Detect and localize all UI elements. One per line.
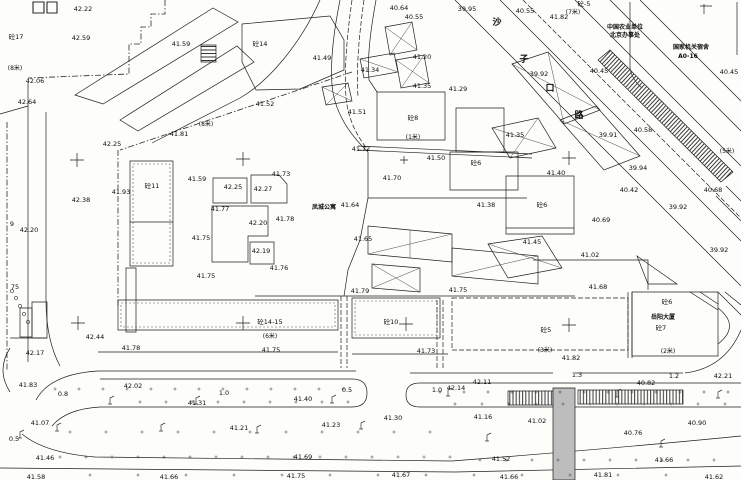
spot-elevation-label: 40.64: [390, 4, 409, 12]
road-width-label: (5米): [720, 147, 735, 155]
tree-dot-icon: [140, 430, 143, 433]
spot-elevation-label: 41.23: [322, 421, 341, 429]
spot-elevation-label: 41.68: [589, 283, 608, 291]
spot-elevation-label: 39.94: [629, 164, 648, 172]
street-lamp-icon: [485, 433, 491, 441]
road-width-label: (8米): [8, 64, 23, 72]
tree-dot-icon: [686, 458, 689, 461]
building-floor-label: 砼6: [471, 158, 482, 167]
spot-elevation-label: 40.58: [634, 126, 653, 134]
spot-elevation-label: 42.02: [124, 382, 143, 390]
spot-elevation-label: 41.64: [341, 201, 360, 209]
site-plan-canvas: 42.2242.5942.0642.6441.5941.5241.4941.51…: [0, 0, 741, 480]
spot-elevation-label: 41.81: [170, 130, 189, 138]
spot-elevation-label: 41.58: [27, 473, 46, 480]
place-name-label: 国家机关宿舍: [673, 43, 710, 51]
tree-dot-icon: [149, 387, 152, 390]
tree-dot-icon: [138, 400, 141, 403]
spot-elevation-label: 40.90: [688, 419, 707, 427]
tree-dot-icon: [582, 458, 585, 461]
spot-elevation-label: 41.70: [383, 174, 402, 182]
street-lamp-layer: [18, 388, 722, 447]
spot-elevation-label: 41.07: [31, 419, 50, 427]
tree-dot-icon: [480, 402, 483, 405]
building-6-upper: [456, 108, 504, 152]
place-name-label: 中国农业单位: [607, 23, 643, 31]
spot-elevation-label: 42.06: [26, 77, 45, 85]
tree-dot-icon: [448, 455, 451, 458]
spot-elevation-label: 41.29: [449, 85, 468, 93]
spot-elevation-label: 41.21: [230, 424, 249, 432]
spot-elevation-label: 41.02: [528, 417, 547, 425]
place-name-label: 凤城公寓: [312, 203, 336, 211]
survey-cross-icon: [399, 317, 413, 331]
spot-elevation-label: 41.59: [188, 175, 207, 183]
spot-elevation-label: 41.35: [506, 131, 525, 139]
road-width-label: (8米): [199, 120, 214, 128]
building-slab-b: [120, 46, 254, 131]
spot-elevation-label: 41.78: [122, 344, 141, 352]
tree-dot-icon: [616, 473, 619, 476]
tree-dot-icon: [248, 430, 251, 433]
spot-elevation-label: 41.93: [112, 188, 131, 196]
spot-elevation-label: 41.83: [19, 381, 38, 389]
spot-elevation-label: 41.59: [172, 40, 191, 48]
tree-dot-icon: [269, 387, 272, 390]
spot-elevation-label: 41.40: [547, 169, 566, 177]
spot-elevation-label: 41.16: [474, 413, 493, 421]
street-lamp-icon: [55, 423, 61, 431]
tree-dot-icon: [376, 473, 379, 476]
spot-elevation-label: 41.75: [262, 346, 281, 354]
tree-dot-icon: [173, 387, 176, 390]
tree-dot-icon: [723, 402, 726, 405]
survey-cross-icon: [70, 153, 84, 167]
spot-elevation-label: 41.46: [36, 454, 55, 462]
building-floor-label: 砼-5: [578, 0, 591, 8]
spot-elevation-label: 39.92: [530, 70, 549, 78]
street-name-char: 口: [545, 83, 554, 94]
spot-elevation-label: 41.38: [477, 201, 496, 209]
spot-elevation-label: 41.82: [562, 354, 581, 362]
spot-elevation-label: 39.92: [669, 203, 688, 211]
tree-dot-icon: [696, 402, 699, 405]
spot-elevation-label: 39.92: [710, 246, 729, 254]
spot-elevation-label: 40.42: [620, 186, 639, 194]
tree-dot-icon: [240, 455, 243, 458]
spot-elevation-label: 40.76: [624, 429, 643, 437]
survey-cross-icon: [236, 316, 250, 330]
tree-dot-icon: [184, 473, 187, 476]
spot-elevation-label: 41.49: [313, 54, 332, 62]
pole-icon: [14, 296, 17, 299]
steps-band: [598, 50, 733, 182]
wedge-structure: [637, 256, 677, 284]
tree-dot-icon: [68, 430, 71, 433]
survey-cross-icon: [71, 316, 85, 330]
spot-elevation-label: 0.5: [342, 386, 352, 394]
spot-elevation-label: 41.62: [705, 473, 724, 480]
place-name-label: 岳阳大厦: [651, 313, 676, 321]
tree-dot-icon: [320, 400, 323, 403]
building-floor-label: 砼6: [662, 297, 673, 306]
tree-dot-icon: [472, 473, 475, 476]
spot-elevation-label: 42.25: [224, 183, 243, 191]
survey-cross-layer: [70, 151, 576, 332]
tree-dot-icon: [232, 473, 235, 476]
spot-elevation-label: 42.27: [254, 185, 273, 193]
road-width-label: (3米): [538, 346, 553, 354]
tree-dot-icon: [318, 455, 321, 458]
spot-elevation-label: 41.20: [413, 53, 432, 61]
tree-dot-icon: [344, 455, 347, 458]
zebra-crossing: [508, 391, 553, 405]
tree-dot-icon: [346, 400, 349, 403]
tree-dot-icon: [280, 473, 283, 476]
left-road-lines: [0, 82, 60, 392]
building-floor-label: 砼5: [541, 325, 552, 334]
tree-dot-icon: [424, 473, 427, 476]
tree-dot-icon: [702, 390, 705, 393]
tree-dot-icon: [164, 400, 167, 403]
tree-dot-icon: [104, 430, 107, 433]
tree-dot-icon: [520, 473, 523, 476]
spot-elevation-label: 41.02: [581, 251, 600, 259]
tree-dot-icon: [212, 430, 215, 433]
tree-dot-icon: [58, 455, 61, 458]
building-floor-label: 砼14-15: [257, 317, 282, 326]
spot-elevation-label: 1.0: [432, 386, 442, 394]
building-5: [452, 298, 628, 350]
tree-dot-icon: [392, 430, 395, 433]
tree-dot-icon: [486, 390, 489, 393]
tree-dot-icon: [268, 400, 271, 403]
spot-elevation-label: 41.30: [384, 414, 403, 422]
tree-dot-icon: [110, 455, 113, 458]
building-14: [242, 16, 344, 90]
tree-dot-icon: [726, 390, 729, 393]
spot-elevation-label: 41.67: [392, 471, 411, 479]
spot-elevation-label: 39.95: [458, 5, 477, 13]
median-strip: [553, 388, 575, 480]
spot-elevation-label: 41.66: [500, 473, 519, 480]
spot-elevation-label: 41.45: [523, 238, 542, 246]
spot-elevation-label: 41.72: [352, 145, 371, 153]
tree-dot-icon: [176, 430, 179, 433]
spot-elevation-label: 42.17: [26, 349, 45, 357]
tree-dot-icon: [197, 387, 200, 390]
spot-elevation-label: 40.55: [405, 13, 424, 21]
spot-elevation-label: 75: [11, 283, 19, 291]
building-6-mid: [450, 152, 518, 190]
spot-elevation-label: 41.75: [197, 272, 216, 280]
spot-elevation-label: 42.21: [714, 372, 733, 380]
spot-elevation-label: 41.79: [351, 287, 370, 295]
building-floor-label: 砼17: [9, 32, 24, 41]
tree-dot-icon: [216, 400, 219, 403]
road-width-label: (2米): [661, 347, 676, 355]
spot-elevation-label: 42.44: [86, 333, 105, 341]
spot-elevation-label: 40.45: [590, 67, 609, 75]
street-name-char: 子: [519, 54, 528, 65]
building-floor-label: 砼11: [145, 181, 160, 190]
spot-elevation-label: 1.0: [219, 389, 229, 397]
spot-elevation-label: 40.68: [704, 186, 723, 194]
spot-elevation-label: 41.78: [276, 215, 295, 223]
building-floor-label: 砼6: [537, 200, 548, 209]
site-plan-drawing: 42.2242.5942.0642.6441.5941.5241.4941.51…: [0, 0, 741, 480]
spot-elevation-label: 1.3: [572, 371, 582, 379]
tree-dot-icon: [634, 458, 637, 461]
spot-elevation-label: 41.35: [413, 82, 432, 90]
spot-elevation-label: 40.55: [516, 7, 535, 15]
spot-elevation-label: 42.11: [473, 378, 492, 386]
spot-elevation-label: 41.31: [188, 399, 207, 407]
tree-dot-icon: [428, 430, 431, 433]
spot-elevation-label: 42.25: [103, 140, 122, 148]
building-11: [130, 161, 173, 266]
spot-elevation-label: 41.73: [417, 347, 436, 355]
building-floor-label: 砼8: [408, 113, 419, 122]
survey-cross-icon: [236, 152, 250, 166]
spot-elevation-label: 0.5: [9, 435, 19, 443]
tree-dot-icon: [242, 400, 245, 403]
tree-dot-icon: [530, 458, 533, 461]
tree-dot-icon: [266, 455, 269, 458]
spot-elevation-label: 40.82: [637, 379, 656, 387]
spot-elevation-label: 40.69: [592, 216, 611, 224]
small-structure: [47, 2, 57, 13]
small-structure: [33, 2, 44, 13]
street-lamp-icon: [159, 423, 165, 431]
spot-elevation-label: 41.81: [594, 471, 613, 479]
street-lamp-icon: [359, 421, 365, 429]
place-name-label: A0-16: [678, 53, 698, 60]
tree-dot-icon: [453, 402, 456, 405]
building-floor-label: 砼7: [656, 323, 667, 332]
spot-elevation-label: 42.64: [18, 98, 37, 106]
spot-elevation-label: 42.38: [72, 196, 91, 204]
spot-elevation-label: 42.59: [72, 34, 91, 42]
tree-dot-icon: [53, 387, 56, 390]
tree-dot-icon: [284, 430, 287, 433]
pole-icon: [18, 304, 21, 307]
street-lamp-icon: [330, 395, 336, 403]
spot-elevation-label: 41.75: [449, 286, 468, 294]
spot-elevation-label: 41.75: [287, 472, 306, 480]
building-floor-label: 砼14: [253, 39, 268, 48]
tree-dot-icon: [356, 430, 359, 433]
spot-elevation-label: 41.50: [427, 154, 446, 162]
spot-elevation-label: 42.22: [74, 5, 93, 13]
tree-dot-icon: [370, 455, 373, 458]
spot-elevation-label: 42.14: [447, 384, 466, 392]
road-width-label: (6米): [263, 332, 278, 340]
spot-elevation-label: 41.51: [348, 108, 367, 116]
tree-dot-icon: [422, 455, 425, 458]
tree-dot-icon: [317, 387, 320, 390]
tree-dot-icon: [101, 387, 104, 390]
tree-dot-icon: [136, 455, 139, 458]
spot-elevation-label: 41.34: [361, 66, 380, 74]
tree-dot-icon: [320, 430, 323, 433]
spot-elevation-label: 41.52: [256, 100, 275, 108]
spot-elevation-label: 40.45: [720, 68, 739, 76]
building-floor-label: 砼10: [384, 317, 399, 326]
survey-cross-icon: [562, 151, 576, 165]
tree-dot-icon: [664, 473, 667, 476]
spot-elevation-label: 41.66: [160, 473, 179, 480]
spot-elevation-label: 9: [10, 220, 14, 228]
road-width-label: (1米): [406, 133, 421, 141]
spot-elevation-label: 41.76: [270, 264, 289, 272]
tree-dot-icon: [77, 387, 80, 390]
tree-dot-icon: [712, 458, 715, 461]
spot-elevation-label: 41.73: [272, 170, 291, 178]
tree-dot-icon: [88, 473, 91, 476]
spot-elevation-label: 39.91: [599, 131, 618, 139]
street-lamp-icon: [108, 396, 114, 404]
street-name-char: 沙: [492, 17, 501, 28]
spot-elevation-label: 41.69: [294, 453, 313, 461]
place-name-label: 北京办事处: [610, 31, 641, 39]
spot-elevation-label: 41.52: [492, 455, 511, 463]
spot-elevation-label: 42.19: [252, 247, 271, 255]
spot-elevation-label: 41.65: [354, 235, 373, 243]
small-house: [20, 308, 32, 337]
survey-cross-icon: [562, 318, 576, 332]
tree-dot-icon: [608, 458, 611, 461]
pole-icon: [22, 312, 25, 315]
curved-road-lines: [331, 0, 377, 152]
spot-elevation-label: 41.75: [192, 234, 211, 242]
tree-dot-icon: [396, 455, 399, 458]
spot-elevation-label: 41.77: [211, 205, 230, 213]
building-14-15: [118, 300, 338, 330]
spot-elevation-label: 41.66: [655, 456, 674, 464]
road-width-label: (7米): [566, 8, 581, 16]
spot-elevation-label: 0.8: [58, 390, 68, 398]
spot-elevation-label: 41.40: [294, 395, 313, 403]
spot-elevation-label: 1.2: [669, 372, 679, 380]
tree-dot-icon: [328, 473, 331, 476]
tree-dot-icon: [293, 387, 296, 390]
street-name-char: 路: [574, 109, 584, 121]
street-lamp-icon: [716, 390, 722, 398]
small-house: [32, 302, 47, 338]
street-lamp-icon: [255, 425, 261, 433]
spot-elevation-label: 42.20: [249, 219, 268, 227]
spot-elevation-label: 42.20: [20, 226, 39, 234]
tree-dot-icon: [136, 473, 139, 476]
tree-dot-icon: [245, 387, 248, 390]
stairs-icon: [201, 45, 216, 62]
